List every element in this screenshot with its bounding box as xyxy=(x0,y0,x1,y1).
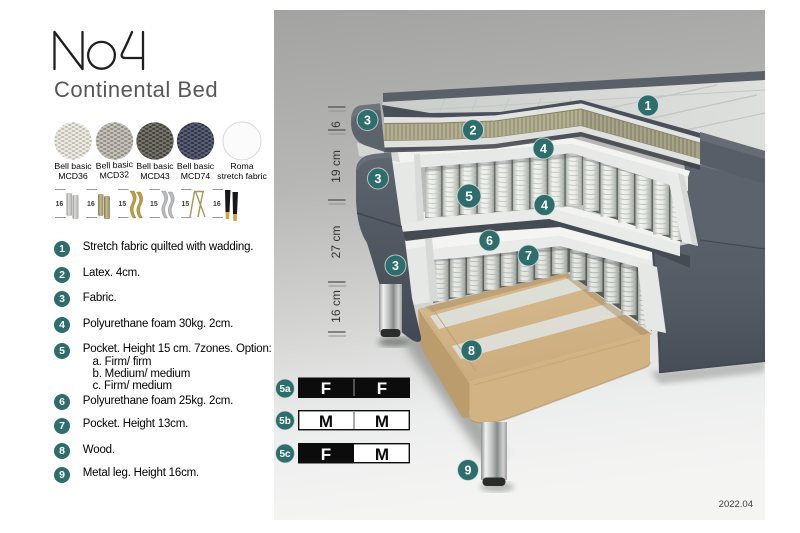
svg-text:Bell basic: Bell basic xyxy=(54,161,92,171)
svg-text:5c: 5c xyxy=(279,449,291,460)
svg-text:5a: 5a xyxy=(279,384,291,395)
svg-text:3: 3 xyxy=(364,114,371,128)
svg-text:Bell basic: Bell basic xyxy=(177,161,215,171)
svg-text:4: 4 xyxy=(541,199,548,213)
svg-text:16: 16 xyxy=(213,201,221,208)
svg-text:5: 5 xyxy=(465,188,473,204)
svg-text:stretch fabric: stretch fabric xyxy=(217,171,267,181)
svg-text:1: 1 xyxy=(645,99,652,113)
svg-text:6: 6 xyxy=(329,121,343,128)
svg-text:8: 8 xyxy=(468,344,475,358)
svg-text:Roma: Roma xyxy=(230,161,253,171)
svg-text:MCD36: MCD36 xyxy=(58,171,88,181)
svg-text:MCD43: MCD43 xyxy=(140,171,170,181)
svg-text:15: 15 xyxy=(150,201,158,208)
svg-text:F: F xyxy=(321,379,331,398)
svg-text:M: M xyxy=(375,445,389,464)
svg-text:3: 3 xyxy=(375,172,382,186)
svg-text:4: 4 xyxy=(540,142,547,156)
svg-text:2: 2 xyxy=(470,124,477,138)
svg-text:5b: 5b xyxy=(279,416,291,427)
svg-text:19 cm: 19 cm xyxy=(329,150,343,183)
svg-text:Bell basic: Bell basic xyxy=(136,161,174,171)
svg-text:M: M xyxy=(319,412,333,431)
svg-text:M: M xyxy=(375,412,389,431)
svg-text:16: 16 xyxy=(56,201,64,208)
svg-text:F: F xyxy=(321,445,331,464)
svg-text:15: 15 xyxy=(182,201,190,208)
svg-text:16: 16 xyxy=(87,201,95,208)
svg-text:9: 9 xyxy=(465,464,472,478)
svg-text:6: 6 xyxy=(486,234,493,248)
svg-text:F: F xyxy=(377,379,387,398)
svg-text:7: 7 xyxy=(525,249,532,263)
svg-text:MCD74: MCD74 xyxy=(181,171,211,181)
svg-text:15: 15 xyxy=(119,201,127,208)
svg-text:2022.04: 2022.04 xyxy=(719,499,753,510)
svg-text:MCD32: MCD32 xyxy=(99,169,129,181)
svg-text:27 cm: 27 cm xyxy=(329,226,343,259)
svg-text:3: 3 xyxy=(392,259,399,273)
svg-text:16 cm: 16 cm xyxy=(329,290,343,323)
